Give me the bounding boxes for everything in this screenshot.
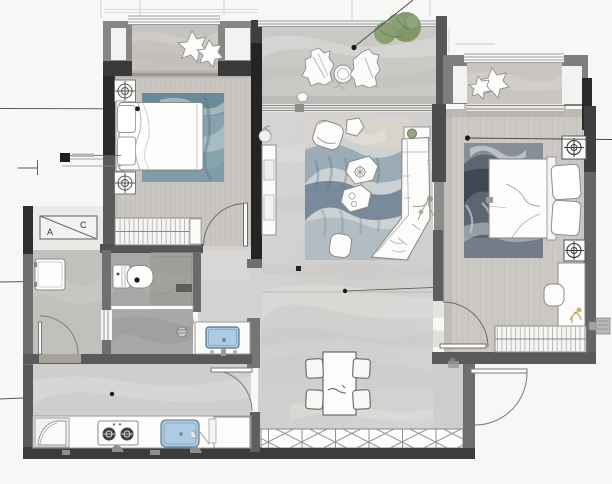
svg-text:C: C: [80, 220, 87, 230]
svg-text:A: A: [47, 227, 53, 237]
